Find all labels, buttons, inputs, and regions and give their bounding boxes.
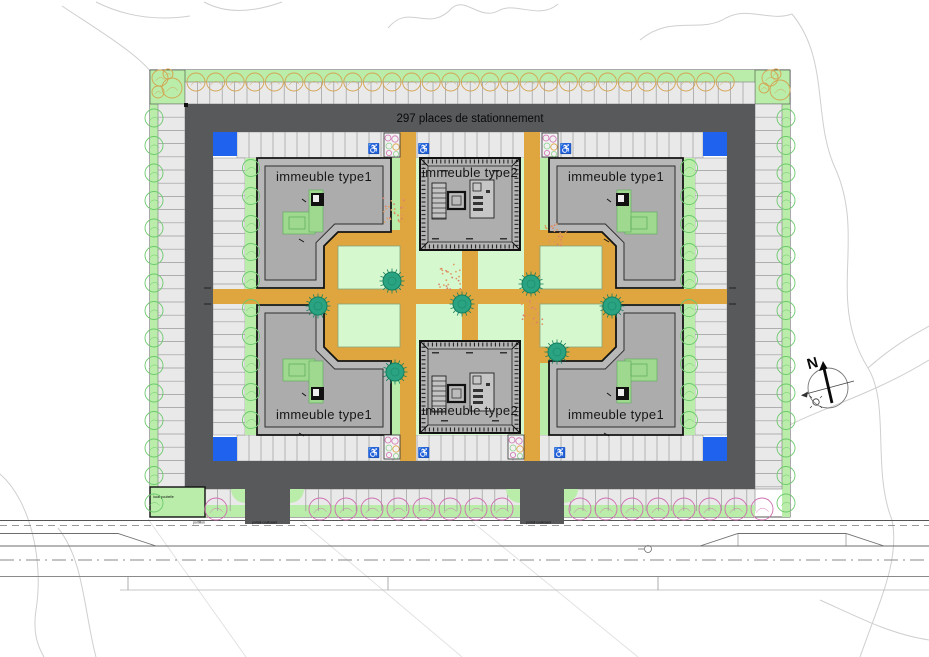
north-needle <box>823 364 832 403</box>
shrub-dot <box>532 323 534 325</box>
blue-square-bottom-right <box>703 437 727 461</box>
shrub-dot <box>398 221 400 223</box>
unit-mark <box>473 202 483 205</box>
contour-line <box>204 2 282 10</box>
accessible-parking-icon: ♿ <box>560 142 572 155</box>
shrub-dot <box>397 215 399 217</box>
shrub-dot <box>560 245 562 247</box>
unit-mark <box>473 208 483 211</box>
shrub-dot <box>455 278 457 280</box>
shrub-dot <box>522 300 524 302</box>
tree-icon <box>386 363 404 381</box>
elevator-core <box>448 385 465 402</box>
shrub-dot <box>536 322 538 324</box>
shrub-dot <box>523 315 525 317</box>
shrub-dot <box>383 197 385 199</box>
shrub-dot <box>394 211 396 213</box>
building-label-type2-bottom: immeuble type2 <box>422 403 518 418</box>
shrub-dot <box>458 280 460 282</box>
shrub-dot <box>560 234 562 236</box>
shrub-dot <box>438 283 440 285</box>
green-edge-left <box>150 82 158 517</box>
shrub-dot <box>554 224 556 226</box>
entry-door-inner <box>618 389 624 396</box>
shrub-dot <box>522 318 524 320</box>
shrub-dot <box>560 241 562 243</box>
shrub-dot <box>394 208 396 210</box>
accessible-parking-icon: ♿ <box>554 446 566 459</box>
shrub-dot <box>548 241 550 243</box>
shrub-dot <box>451 277 453 279</box>
contour-line <box>820 600 929 640</box>
shrub-dot <box>447 284 449 286</box>
shrub-dot <box>459 288 461 290</box>
shrub-dot <box>455 271 457 273</box>
contour-line <box>96 2 190 18</box>
road-marking-circle <box>645 546 652 553</box>
tree-icon <box>603 297 621 315</box>
shrub-dot <box>541 323 543 325</box>
shrub-dot <box>450 273 452 275</box>
contour-line <box>470 520 638 657</box>
street <box>0 521 929 591</box>
shrub-dot <box>554 241 556 243</box>
shrub-dot <box>521 303 523 305</box>
shrub-dot <box>385 205 387 207</box>
waste-room-label: local poubelle <box>153 495 174 499</box>
tree-icon <box>453 295 471 313</box>
site-plan-page: ♿♿♿♿♿♿ 297 places de stationnement immeu… <box>0 0 929 657</box>
unit-mark <box>486 383 490 386</box>
blue-square-top-right <box>703 132 727 156</box>
gate-sliding-right-label: portail coulissant <box>526 521 551 525</box>
shrub-dot <box>403 199 405 201</box>
shrub-dot <box>445 279 447 281</box>
road-corner-mark <box>184 103 188 107</box>
unit-mark <box>473 389 483 392</box>
building-tick <box>441 420 448 422</box>
shrub-dot <box>541 318 543 320</box>
shrub-dot <box>441 269 443 271</box>
shrub-dot <box>552 227 554 229</box>
lawn-quad <box>540 246 602 289</box>
building-tick <box>492 420 499 422</box>
entry-door-inner <box>618 195 624 202</box>
shrub-dot <box>383 211 385 213</box>
blue-square-top-left <box>213 132 237 156</box>
shrub-dot <box>401 218 403 220</box>
north-arrow-head-west <box>801 392 808 398</box>
building-tick <box>432 238 439 240</box>
shrub-dot <box>403 207 405 209</box>
sun-rays <box>810 396 822 408</box>
shrub-dot <box>535 307 537 309</box>
shrub-dot <box>449 288 451 290</box>
shrub-dot <box>439 286 441 288</box>
accessible-parking-icon: ♿ <box>368 142 380 155</box>
shrub-dot <box>440 268 442 270</box>
shrub-dot <box>445 270 447 272</box>
shrub-dot <box>442 273 444 275</box>
shrub-dot <box>557 244 559 246</box>
shrub-dot <box>556 239 558 241</box>
shrub-dot <box>443 284 445 286</box>
parking-count-label: 297 places de stationnement <box>396 113 544 125</box>
waste-room <box>150 487 205 517</box>
shrub-dot <box>556 229 558 231</box>
gate-sliding-left-label: portail coulissant <box>252 521 277 525</box>
shrub-dot <box>554 230 556 232</box>
shrub-dot <box>388 206 390 208</box>
entry-door-inner <box>313 195 319 202</box>
gate-pedestrian-label: portillon <box>193 521 205 525</box>
shrub-dot <box>551 225 553 227</box>
shrub-dot <box>459 283 461 285</box>
shrub-dot <box>556 223 558 225</box>
shrub-dot <box>531 308 533 310</box>
lawn-quad <box>540 304 602 347</box>
contour-line <box>0 474 44 657</box>
shrub-dot <box>545 225 547 227</box>
contour-line <box>58 528 96 657</box>
unit-mark <box>473 196 483 199</box>
accessible-parking-icon: ♿ <box>418 142 430 155</box>
building-label-type2-top: immeuble type2 <box>422 165 518 180</box>
building-label-type1-bottom-left: immeuble type1 <box>276 407 372 422</box>
shrub-dot <box>558 236 560 238</box>
lawn-quad <box>338 304 400 347</box>
blue-square-bottom-left <box>213 437 237 461</box>
building-tick <box>500 238 507 240</box>
shrub-dot <box>536 302 538 304</box>
shrub-dot <box>537 312 539 314</box>
tree-icon <box>383 272 401 290</box>
shrub-dot <box>549 239 551 241</box>
shrub-dot <box>528 314 530 316</box>
building-label-type1-top-right: immeuble type1 <box>568 169 664 184</box>
shrub-dot <box>390 209 392 211</box>
building-tick <box>466 352 473 354</box>
building-tick <box>466 238 473 240</box>
shrub-dot <box>459 269 461 271</box>
shrub-dot <box>446 285 448 287</box>
shrub-dot <box>560 239 562 241</box>
contour-line <box>148 519 246 657</box>
shrub-dot <box>393 203 395 205</box>
shrub-dot <box>566 230 568 232</box>
building-tick <box>432 352 439 354</box>
unit-mark <box>473 395 483 398</box>
shrub-dot <box>529 301 531 303</box>
north-letter: N <box>805 354 820 373</box>
shrub-dot <box>446 287 448 289</box>
driveway-right <box>520 489 564 524</box>
shrub-dot <box>400 207 402 209</box>
shrub-dot <box>387 218 389 220</box>
contour-line <box>868 326 929 368</box>
shrub-dot <box>565 232 567 234</box>
layby-outline <box>700 534 884 547</box>
shrub-dot <box>453 264 455 266</box>
shrub-dot <box>401 214 403 216</box>
north-arrow: N <box>801 354 854 408</box>
shrub-dot <box>526 300 528 302</box>
shrub-dot <box>530 307 532 309</box>
tree-icon <box>522 275 540 293</box>
shrub-dot <box>385 208 387 210</box>
shrub-dot <box>390 218 392 220</box>
contour-line <box>640 13 792 40</box>
shrub-dot <box>447 271 449 273</box>
entry-door-inner <box>313 389 319 396</box>
unit-mark <box>486 190 490 193</box>
parking-col-left-outer <box>158 104 185 489</box>
tree-icon <box>548 343 566 361</box>
green-edge-right <box>782 82 790 517</box>
shrub-dot <box>525 311 527 313</box>
tree-icon <box>309 297 327 315</box>
shrub-dot <box>390 200 392 202</box>
elevator-core <box>448 192 465 209</box>
shrub-dot <box>444 289 446 291</box>
building-tick <box>500 352 507 354</box>
contour-line <box>300 520 462 657</box>
accessible-parking-icon: ♿ <box>418 446 430 459</box>
driveway-left <box>245 489 290 524</box>
building-label-type1-bottom-right: immeuble type1 <box>568 407 664 422</box>
contour-line <box>792 14 894 657</box>
shrub-dot <box>547 235 549 237</box>
shrub-dot <box>559 232 561 234</box>
shrub-dot <box>537 315 539 317</box>
shrub-dot <box>561 243 563 245</box>
layby-outline <box>0 534 156 547</box>
north-needle-head <box>819 361 828 371</box>
shrub-dot <box>546 227 548 229</box>
building-label-type1-top-left: immeuble type1 <box>276 169 372 184</box>
stair-core <box>432 183 446 219</box>
accessible-parking-icon: ♿ <box>368 446 380 459</box>
shrub-dot <box>533 318 535 320</box>
shrub-dot <box>561 236 563 238</box>
site-plan-canvas: ♿♿♿♿♿♿ 297 places de stationnement immeu… <box>0 0 929 657</box>
parking-col-right-outer <box>755 104 782 489</box>
contour-line <box>388 4 558 28</box>
shrub-dot <box>384 221 386 223</box>
shrub-dot <box>529 304 531 306</box>
shrub-dot <box>458 276 460 278</box>
shrub-dot <box>398 219 400 221</box>
